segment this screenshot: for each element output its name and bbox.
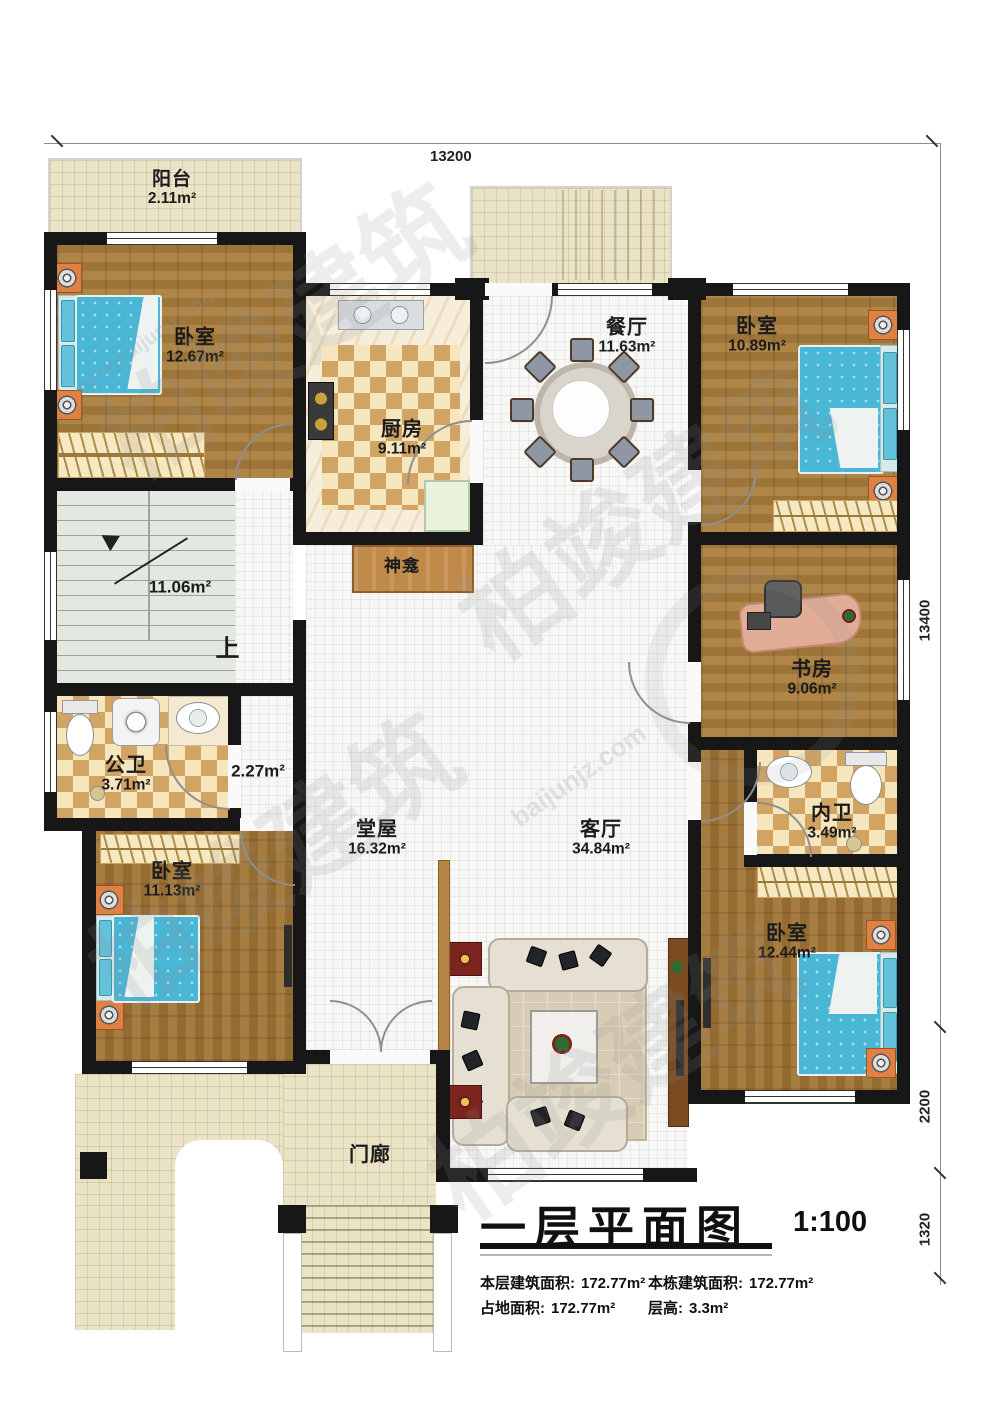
title-underline-thin: [480, 1254, 772, 1256]
dim-tick: [51, 135, 64, 148]
bath-public-sink: [176, 702, 220, 734]
bed-bl-blanket: [114, 917, 154, 997]
wall: [306, 532, 483, 545]
wall: [470, 283, 483, 420]
fridge: [424, 480, 470, 532]
sofa-pillow: [460, 1010, 480, 1030]
hall-partition: [438, 860, 450, 1052]
nightstand: [866, 1048, 896, 1078]
kitchen-sink: [338, 300, 424, 330]
bed-tl-cushion: [61, 345, 75, 387]
dim-top-value: 13200: [430, 148, 472, 165]
bed-tl-blanket: [118, 297, 158, 389]
wall: [436, 1050, 450, 1182]
bath-inner-toilet: [850, 765, 882, 805]
window: [44, 552, 57, 640]
label-bedroom-tr: 卧室 10.89m²: [728, 315, 786, 354]
terrace-top-slats: [562, 190, 666, 280]
nightstand: [94, 1000, 124, 1030]
stat-floor-height: 层高:3.3m²: [648, 1297, 728, 1318]
floor-plan-canvas: 阳台 2.11m² 卧室 12.67m² 厨房 9.11m² 餐厅 11.63m…: [0, 0, 1000, 1416]
window: [107, 232, 217, 245]
bed-tr-blanket: [800, 408, 878, 468]
stat-building-area: 本栋建筑面积:172.77m²: [648, 1272, 813, 1293]
stairs-divider: [148, 490, 150, 640]
dim-right-bottom: 1320: [917, 1208, 934, 1252]
wall: [701, 532, 897, 545]
door-opening: [744, 802, 757, 855]
label-stairs-up: 上: [216, 637, 241, 664]
entry-steps: [300, 1205, 433, 1333]
bath-public-toilet-tank: [62, 700, 98, 714]
window: [558, 283, 652, 296]
bed-br-cushion: [883, 958, 897, 1008]
porch-pillar-right: [430, 1205, 458, 1233]
corridor-floor: [241, 696, 293, 818]
label-dining: 餐厅 11.63m²: [599, 316, 656, 355]
door-opening: [485, 283, 552, 296]
porch-pillar-left: [278, 1205, 306, 1233]
watermark-logo-circle: [645, 570, 861, 786]
nightstand: [868, 310, 898, 340]
bed-tr-cushion: [883, 352, 897, 404]
nightstand: [866, 920, 896, 950]
drawing-scale: 1:100: [793, 1206, 867, 1239]
bath-public-toilet: [66, 714, 94, 756]
window: [44, 290, 57, 390]
window: [330, 283, 430, 296]
porch-floor: [283, 1064, 436, 1205]
label-kitchen: 厨房 9.11m²: [378, 418, 426, 457]
stove: [308, 382, 334, 440]
bath-inner-toilet-tank: [845, 752, 887, 766]
label-corridor-area: 2.27m²: [231, 763, 285, 782]
wardrobe-tl: [58, 432, 205, 478]
bed-bl-cushion: [99, 959, 112, 996]
bed-tl-cushion: [61, 300, 75, 342]
bed-br-blanket: [799, 954, 877, 1014]
door-opening: [240, 818, 293, 831]
terrace-pillar: [80, 1152, 107, 1179]
bed-tr-cushion: [883, 408, 897, 460]
label-balcony: 阳台 2.11m²: [148, 169, 196, 207]
side-table: [448, 942, 482, 976]
wardrobe-tr: [773, 500, 899, 532]
wall: [82, 831, 96, 1074]
window: [44, 712, 57, 792]
dimension-line-top: [44, 143, 940, 144]
step-column-left: [283, 1233, 302, 1352]
label-stair-area: 11.06m²: [149, 579, 211, 598]
stat-floor-area: 本层建筑面积:172.77m²: [480, 1272, 645, 1293]
dim-tick: [926, 135, 939, 148]
entry-door-opening: [330, 1050, 430, 1064]
side-table: [448, 1085, 482, 1119]
dimension-line-right: [940, 143, 941, 1285]
dim-right-total: 13400: [917, 596, 934, 646]
dining-table-top: [552, 380, 610, 438]
terrace-bl-arm: [75, 1205, 175, 1330]
label-bedroom-bl: 卧室 11.13m²: [144, 860, 201, 899]
tv-bedroom-bl: [284, 925, 292, 987]
wall: [44, 683, 306, 696]
stair-side-floor: [235, 490, 293, 683]
dim-right-mid: 2200: [917, 1085, 934, 1129]
window: [733, 283, 848, 296]
chair: [630, 398, 654, 422]
window: [745, 1090, 855, 1104]
window: [897, 330, 910, 430]
wall-pillar: [668, 278, 706, 300]
window: [132, 1061, 247, 1074]
label-living: 客厅 34.84m²: [572, 818, 630, 857]
label-bedroom-br: 卧室 12.44m²: [758, 922, 816, 961]
window: [488, 1168, 643, 1182]
wall-pillar: [455, 278, 489, 300]
title-underline: [480, 1243, 772, 1249]
plant-small: [670, 960, 684, 974]
driveway-cutout: [175, 1140, 283, 1330]
door-opening: [688, 470, 701, 522]
stat-ground-area: 占地面积:172.77m²: [480, 1297, 615, 1318]
chair: [570, 338, 594, 362]
window: [897, 580, 910, 700]
wardrobe-br: [757, 866, 899, 898]
chair: [570, 458, 594, 482]
label-bath-public: 公卫 3.71m²: [101, 754, 150, 793]
label-bath-inner: 内卫 3.49m²: [807, 802, 856, 841]
tv-bedroom-br: [703, 958, 711, 1028]
label-porch: 门廊: [349, 1144, 391, 1166]
tv-living: [676, 1000, 684, 1076]
label-hall: 堂屋 16.32m²: [348, 818, 406, 857]
nightstand: [94, 885, 124, 915]
coffee-table-plant: [548, 1030, 576, 1058]
step-column-right: [433, 1233, 452, 1352]
washing-machine: [112, 698, 160, 746]
wall: [293, 232, 306, 545]
chair: [510, 398, 534, 422]
bed-bl-cushion: [99, 920, 112, 957]
label-bedroom-tl: 卧室 12.67m²: [166, 326, 224, 365]
label-shrine: 神龛: [384, 556, 420, 575]
